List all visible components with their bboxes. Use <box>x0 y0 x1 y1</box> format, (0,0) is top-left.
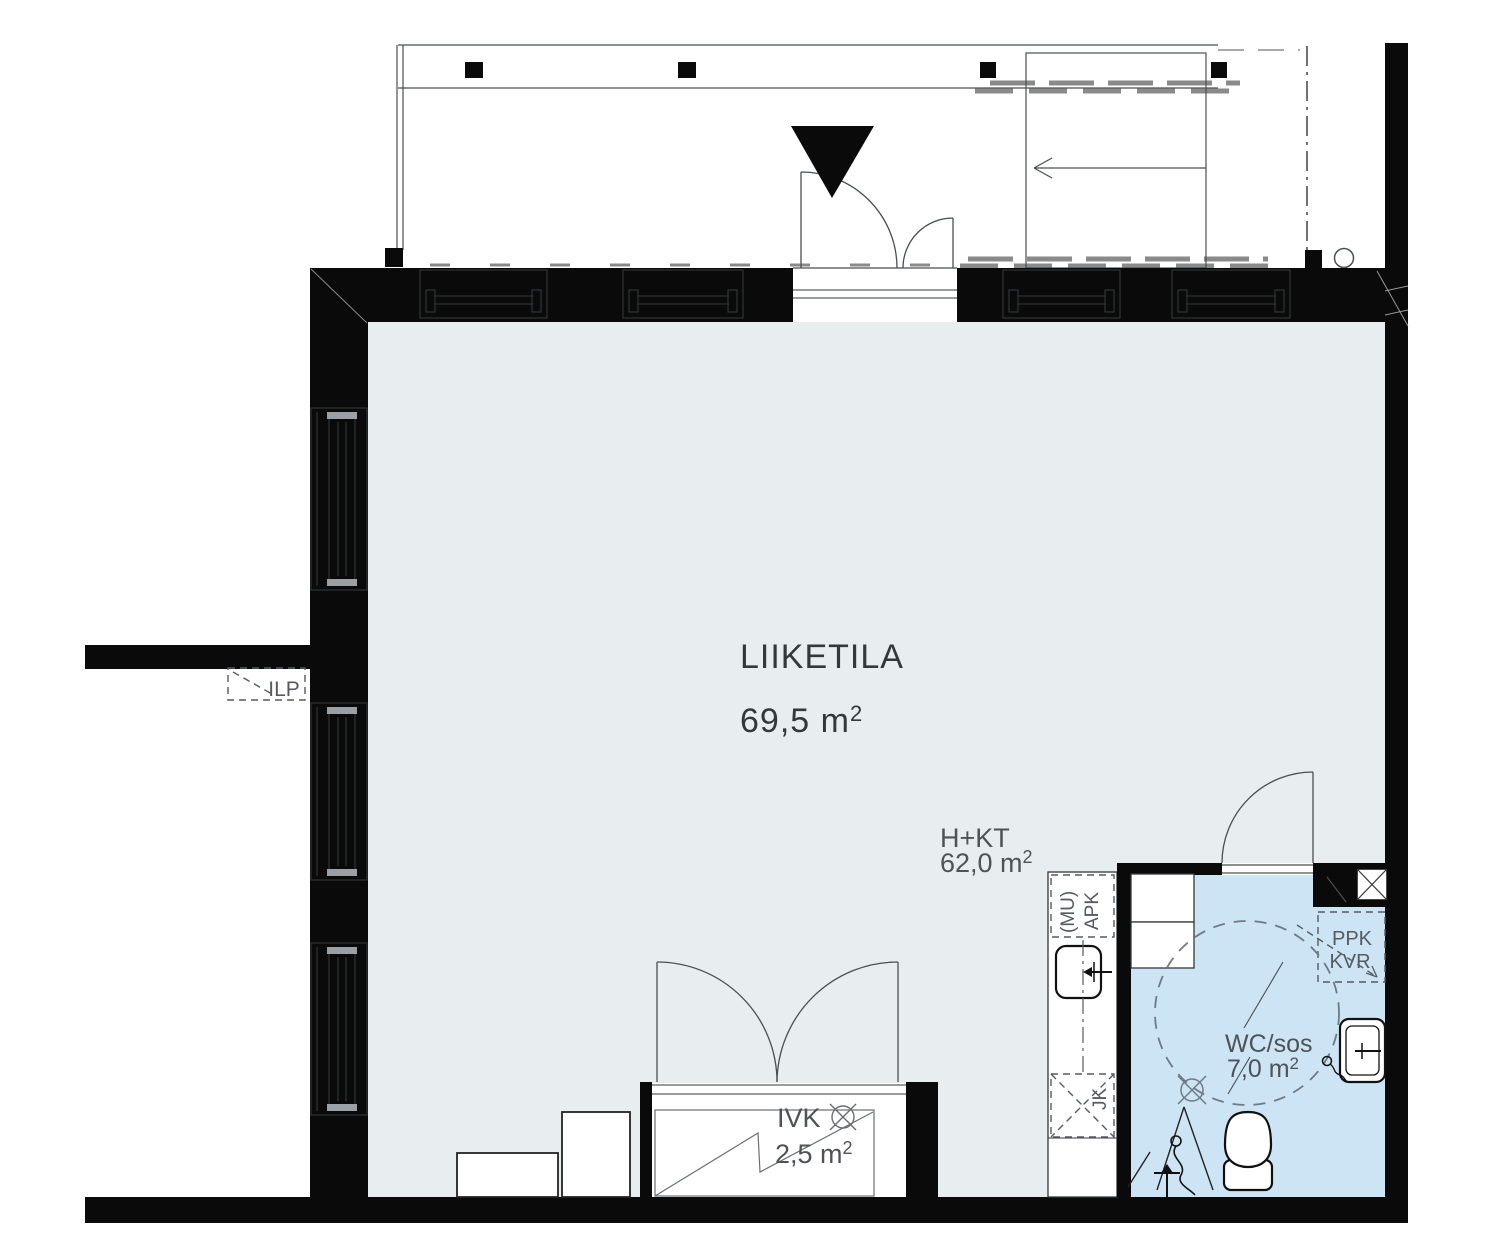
wall-left <box>310 268 368 1197</box>
wall-bottom <box>85 1197 1408 1223</box>
ivk-area: 2,5 m2 <box>775 1138 853 1169</box>
kitchen-counter: (MU) APK JK <box>1048 872 1117 1197</box>
wc-name: WC/sos <box>1225 1030 1313 1058</box>
h-kt-area: 62,0 m2 <box>940 847 1033 878</box>
kvr-label: KVR <box>1329 951 1370 973</box>
wall-stub-left <box>85 645 310 669</box>
entrance-arrow-icon <box>791 126 874 198</box>
jk-label: JK <box>1090 1088 1111 1111</box>
mu-label: (MU) <box>1058 891 1079 933</box>
floor-plan: ILP LIIKETILA 69,5 m2 H+KT 62,0 m2 IVK 2… <box>0 0 1500 1257</box>
ilp-label: ILP <box>268 678 300 701</box>
liiketila-area: 69,5 m2 <box>740 701 863 740</box>
cabinet <box>457 1153 558 1197</box>
wall-right <box>1385 43 1408 1223</box>
post-marker-icon <box>1335 249 1354 268</box>
wc-door-opening <box>1222 863 1313 875</box>
shaft-icon <box>1357 869 1387 900</box>
liiketila-name: LIIKETILA <box>740 638 904 676</box>
wc-cabinet <box>1131 874 1194 922</box>
entrance-door <box>791 126 957 322</box>
ilp-reservation: ILP <box>228 668 305 701</box>
sliding-rail-icon <box>430 83 1275 266</box>
ppk-label: PPK <box>1332 928 1373 950</box>
terrace-outline <box>385 45 1354 268</box>
toilet-icon <box>1224 1112 1272 1190</box>
cabinet <box>562 1112 630 1197</box>
ivk-name: IVK <box>777 1103 821 1133</box>
wc-area: 7,0 m2 <box>1227 1054 1299 1083</box>
columns <box>385 62 1322 268</box>
apk-label: APK <box>1082 892 1103 930</box>
